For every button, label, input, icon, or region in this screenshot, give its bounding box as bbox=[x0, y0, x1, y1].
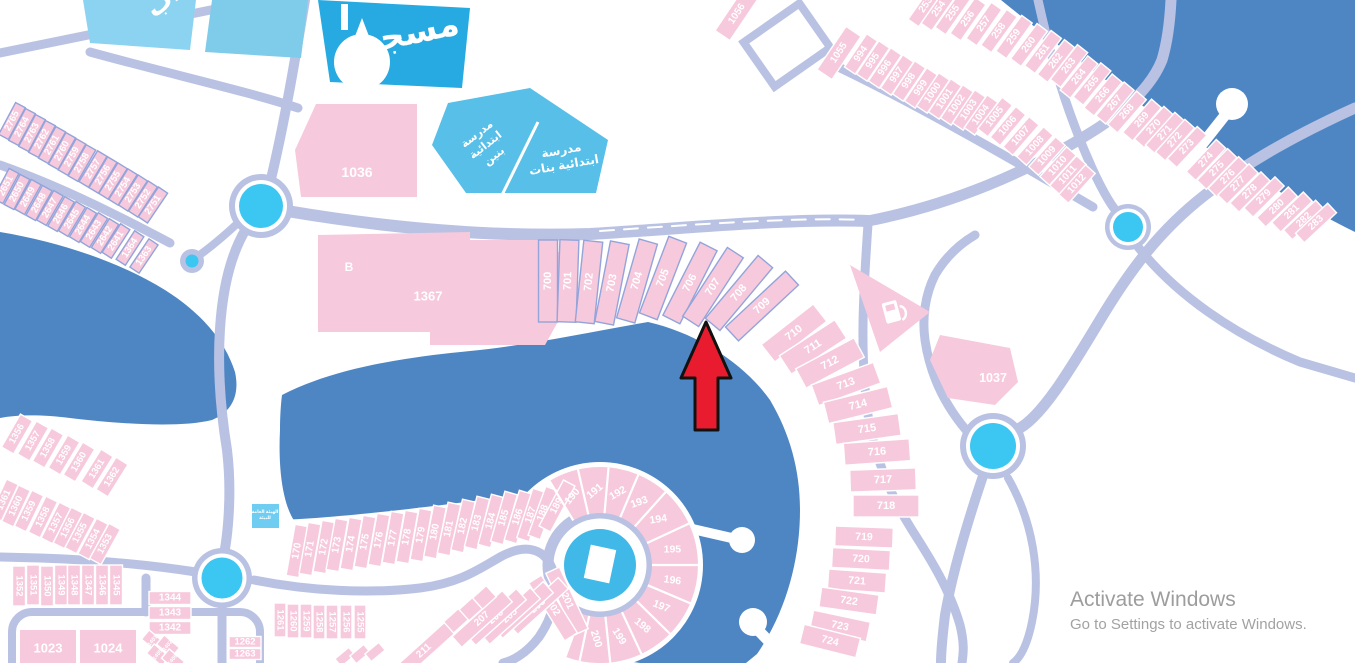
plot-label: 1259 bbox=[301, 610, 312, 631]
plot-label: 1351 bbox=[28, 574, 39, 596]
plot-label: 1344 bbox=[159, 593, 182, 604]
plot-label: 715 bbox=[857, 422, 877, 436]
plot-label: 1346 bbox=[97, 574, 108, 595]
plot-label: 1257 bbox=[327, 611, 338, 632]
plot-1036-shape[interactable] bbox=[295, 104, 417, 197]
roundabout-topleft bbox=[229, 174, 293, 238]
plot-group-row-1255-1261: 1261126012591258125712561255 bbox=[274, 603, 366, 639]
plot-label: 1347 bbox=[83, 574, 94, 595]
plot-group-stack-1342-1344: 134413431342 bbox=[149, 592, 191, 635]
named-plot-label: 1023 bbox=[34, 641, 63, 656]
plot-group-strip-719-724: 719720721722723724 bbox=[799, 526, 893, 658]
named-plot-label: 1024 bbox=[94, 641, 124, 656]
roundabout-topright bbox=[1105, 204, 1151, 250]
plot-label: 722 bbox=[839, 594, 858, 608]
plot-label: 1343 bbox=[159, 608, 182, 619]
plot-label: 1255 bbox=[355, 611, 366, 633]
svg-text:للبيئة: للبيئة bbox=[259, 515, 271, 520]
plot-label: 721 bbox=[848, 574, 866, 587]
plot-label: 1258 bbox=[314, 611, 325, 632]
plot-label: 717 bbox=[874, 474, 893, 487]
plot-group-row-1356-1362: 1356135713581359136013611362 bbox=[1, 414, 128, 497]
roundabout-bottomleft bbox=[192, 548, 252, 608]
plot-group-tiny-bottom-cells bbox=[335, 642, 385, 663]
plot-label: 1352 bbox=[14, 575, 25, 596]
road-topleft-2 bbox=[90, 52, 298, 108]
island-center bbox=[564, 529, 636, 601]
plot-cell[interactable] bbox=[365, 642, 385, 661]
plot-label: 702 bbox=[582, 272, 596, 292]
plot-label: 195 bbox=[664, 544, 682, 556]
named-plot-label: B bbox=[345, 260, 354, 274]
plot-group-pair-1262-1263: 12621263 bbox=[229, 637, 261, 660]
plot-label: 196 bbox=[663, 573, 682, 587]
svg-text:الهيئة العامة: الهيئة العامة bbox=[252, 509, 279, 514]
road-719-east bbox=[1008, 478, 1036, 663]
named-plot-label: 1036 bbox=[341, 164, 372, 180]
plot-label: 718 bbox=[877, 500, 895, 512]
plot-label: 1350 bbox=[42, 575, 53, 596]
building-ring bbox=[744, 3, 831, 86]
plot-group-arc-700-709: 700701702703704705706707708709 bbox=[539, 236, 799, 341]
plot-label: 1256 bbox=[341, 611, 352, 632]
plot-label: 701 bbox=[562, 272, 575, 291]
named-plot-label: 1037 bbox=[979, 371, 1007, 385]
named-plot-label: 1367 bbox=[414, 289, 443, 304]
plot-label: 700 bbox=[542, 272, 554, 290]
plot-label: 194 bbox=[649, 512, 668, 526]
road-main-horizontal bbox=[287, 211, 868, 235]
plot-label: 1348 bbox=[69, 574, 80, 595]
road-r2-southeast bbox=[1135, 243, 1355, 378]
roundabout-right bbox=[960, 413, 1026, 479]
plot-label: 1262 bbox=[234, 637, 255, 648]
plot-label: 1345 bbox=[111, 574, 122, 596]
plot-group-col-1345-1352: 13521351135013491348134713461345 bbox=[13, 565, 123, 606]
plot-label: 719 bbox=[855, 531, 873, 544]
plot-label: 1263 bbox=[234, 649, 255, 660]
plot-label: 1342 bbox=[159, 623, 182, 634]
plot-label: 1349 bbox=[56, 574, 67, 595]
culdesac-small bbox=[180, 249, 204, 273]
plot-label: 1260 bbox=[288, 610, 299, 631]
plot-label: 1261 bbox=[275, 609, 286, 631]
light-block-right[interactable] bbox=[205, 0, 308, 58]
light-block-left[interactable] bbox=[83, 0, 196, 50]
plot-label: 720 bbox=[852, 553, 870, 566]
plot-map-stage: مسجد مدرسة ابتدائية بنين مدرسة ابتدائية … bbox=[0, 0, 1355, 663]
plot-label: 716 bbox=[867, 445, 886, 458]
plot-map: مسجد مدرسة ابتدائية بنين مدرسة ابتدائية … bbox=[0, 0, 1355, 663]
